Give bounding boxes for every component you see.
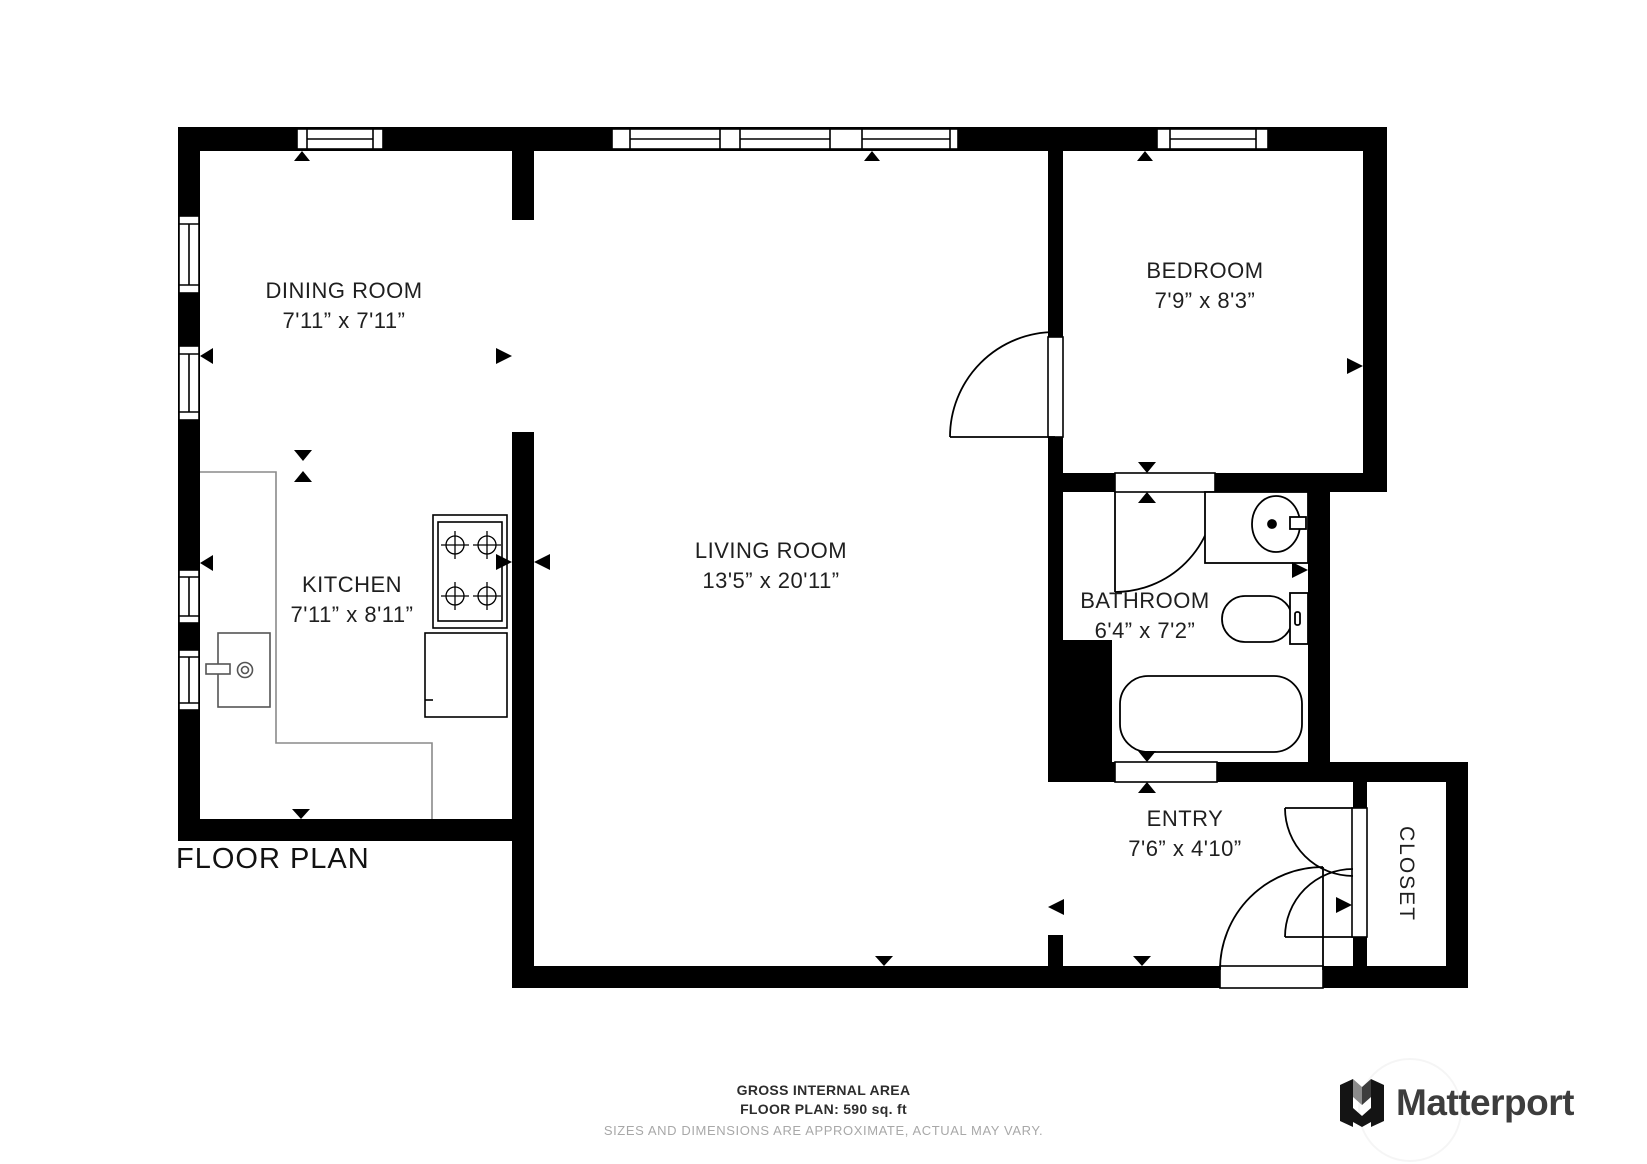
marker-kitchen-left-window: [200, 555, 213, 571]
marker-entry-door-a: [1138, 751, 1156, 762]
front-door: [1220, 867, 1323, 970]
marker-dining-living-open: [496, 348, 512, 364]
toilet: [1222, 593, 1308, 644]
plan-title: FLOOR PLAN: [176, 843, 370, 876]
kitchen-sink: [206, 633, 270, 707]
marker-living-top-window: [864, 151, 880, 161]
bedroom-door: [950, 332, 1055, 437]
bathroom-door: [1115, 492, 1215, 592]
marker-dining-left-window: [200, 348, 213, 364]
stove: [433, 515, 507, 628]
doorway-front-door: [1220, 966, 1323, 988]
doorway-entry-bathroom: [1115, 762, 1217, 782]
marker-entry-door-b: [1138, 782, 1156, 793]
marker-bedroom-right: [1347, 358, 1363, 374]
room-name: ENTRY: [1128, 804, 1241, 834]
room-label-entry: ENTRY 7'6” x 4'10”: [1128, 804, 1241, 864]
marker-kitchen-bottom: [292, 809, 310, 819]
marker-bathroom-right: [1292, 562, 1308, 578]
kitchen-fixtures: [200, 472, 507, 819]
marker-kitchen-pass-b: [534, 554, 550, 570]
window-kitchen-left-2: [179, 650, 199, 710]
marker-bath-door-a: [1138, 462, 1156, 473]
window-living-top: [612, 129, 958, 149]
matterport-logo-icon: [1340, 1078, 1384, 1128]
room-name: BEDROOM: [1146, 256, 1263, 286]
window-dining-top: [297, 129, 383, 149]
room-label-kitchen: KITCHEN 7'11” x 8'11”: [291, 570, 414, 630]
marker-bedroom-top-window: [1137, 151, 1153, 161]
room-label-dining: DINING ROOM 7'11” x 7'11”: [265, 276, 422, 336]
marker-living-bottom: [875, 956, 893, 966]
matterport-logo-text: Matterport: [1396, 1082, 1574, 1124]
marker-dining-top-window: [294, 151, 310, 161]
doorway-bathroom: [1115, 473, 1215, 492]
window-bedroom-top: [1157, 129, 1268, 149]
bathtub: [1120, 676, 1302, 752]
room-dimensions: 6'4” x 7'2”: [1080, 616, 1209, 646]
room-label-bedroom: BEDROOM 7'9” x 8'3”: [1146, 256, 1263, 316]
room-label-closet: CLOSET: [1394, 826, 1418, 922]
room-name: LIVING ROOM: [695, 536, 847, 566]
room-dimensions: 7'9” x 8'3”: [1146, 286, 1263, 316]
room-name: KITCHEN: [291, 570, 414, 600]
doorway-bedroom: [1048, 337, 1063, 437]
room-dimensions: 13'5” x 20'11”: [695, 566, 847, 596]
marker-entry-bottom: [1133, 956, 1151, 966]
room-name: DINING ROOM: [265, 276, 422, 306]
bathroom-sink: [1205, 492, 1308, 563]
door-swings: [950, 332, 1353, 970]
room-label-bathroom: BATHROOM 6'4” x 7'2”: [1080, 586, 1209, 646]
matterport-logo: Matterport: [1340, 1078, 1574, 1128]
room-label-living: LIVING ROOM 13'5” x 20'11”: [695, 536, 847, 596]
floor-plan-page: DINING ROOM 7'11” x 7'11” KITCHEN 7'11” …: [0, 0, 1647, 1164]
marker-dining-kitchen-b: [294, 471, 312, 482]
marker-living-entry-open: [1048, 899, 1064, 915]
closet-door-upper: [1285, 808, 1353, 876]
marker-dining-kitchen-a: [294, 450, 312, 461]
room-dimensions: 7'6” x 4'10”: [1128, 834, 1241, 864]
window-dining-left-1: [179, 216, 199, 293]
room-name: BATHROOM: [1080, 586, 1209, 616]
window-dining-left-2: [179, 346, 199, 420]
room-dimensions: 7'11” x 8'11”: [291, 600, 414, 630]
room-dimensions: 7'11” x 7'11”: [265, 306, 422, 336]
window-kitchen-left-1: [179, 570, 199, 623]
marker-bath-door-b: [1138, 492, 1156, 503]
marker-closet-door: [1336, 897, 1352, 913]
doorway-closet: [1352, 808, 1367, 937]
kitchen-appliance: [425, 633, 507, 717]
